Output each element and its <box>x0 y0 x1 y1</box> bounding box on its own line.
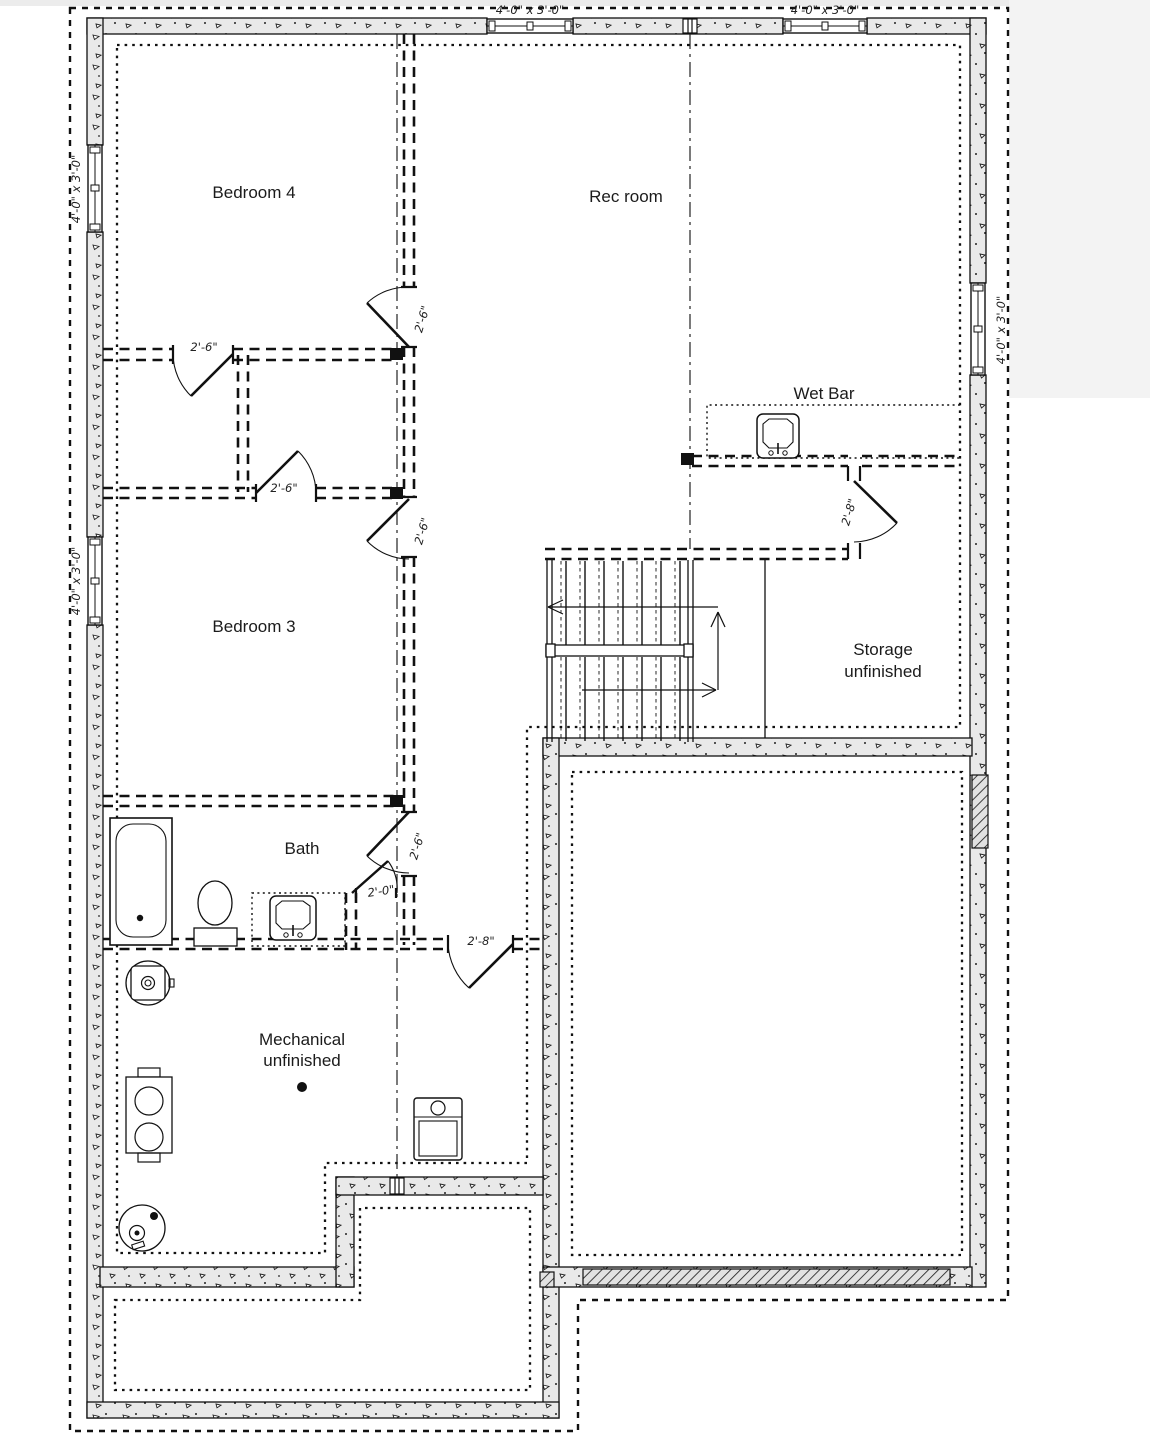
footing-outline <box>70 8 1008 1431</box>
window-size-label: 4'-0" x 3'-0" <box>69 547 83 616</box>
mechanical-fixtures <box>119 961 462 1251</box>
doors <box>173 287 897 988</box>
basement-floor-plan: Bedroom 4 Rec room Wet Bar Bedroom 3 Sto… <box>0 0 1150 1438</box>
window-size-label: 4'-0" x 3'-0" <box>791 3 860 17</box>
windows <box>88 19 985 625</box>
laundry-sink-icon <box>414 1098 462 1160</box>
top-wall-window-left <box>487 19 573 33</box>
floor-plan-drawing <box>0 0 1150 1438</box>
room-label-bedroom-3: Bedroom 3 <box>212 617 295 637</box>
left-wall-window-upper <box>88 145 102 232</box>
window-size-label: 4'-0" x 3'-0" <box>994 296 1008 365</box>
furnace-icon <box>126 1068 172 1162</box>
bathtub-icon <box>110 818 172 945</box>
top-wall-window-right <box>783 19 867 33</box>
storage-door <box>854 481 897 542</box>
bedroom4-closet-door <box>173 354 233 396</box>
concrete-walls <box>87 18 986 1418</box>
hatched-ledge <box>540 775 988 1287</box>
toilet-icon <box>194 881 237 946</box>
door-size-label: 2'-8" <box>467 934 494 948</box>
wet-bar-sink-icon <box>757 414 799 458</box>
bath-entry-door <box>367 812 409 873</box>
door-size-label: 2'-6" <box>190 340 217 354</box>
room-label-mechanical: Mechanical <box>259 1030 345 1050</box>
bedroom4-entry-door <box>367 287 409 347</box>
mechanical-door <box>448 944 513 988</box>
window-size-label: 4'-0" x 3'-0" <box>69 155 83 224</box>
room-label-bedroom-4: Bedroom 4 <box>212 183 295 203</box>
room-label-wet-bar: Wet Bar <box>793 384 854 404</box>
left-wall-window-lower <box>88 537 102 625</box>
right-wall-window <box>971 283 985 375</box>
bath-fixtures <box>110 818 345 946</box>
floor-drain-icon <box>297 1082 307 1092</box>
bath-sink-icon <box>270 896 316 940</box>
room-label-rec-room: Rec room <box>589 187 663 207</box>
room-label-bath: Bath <box>285 839 320 859</box>
door-size-label: 2'-6" <box>270 481 297 495</box>
wet-bar-counter <box>707 405 960 458</box>
room-label-mechanical-sub: unfinished <box>263 1051 341 1071</box>
bedroom3-entry-door <box>367 499 409 559</box>
room-label-storage-sub: unfinished <box>844 662 922 682</box>
water-heater-icon <box>126 961 174 1005</box>
framed-walls <box>103 34 958 950</box>
window-size-label: 4'-0" x 3'-0" <box>496 3 565 17</box>
stairs <box>546 560 765 742</box>
sump-pit-icon <box>119 1205 165 1251</box>
room-label-storage: Storage <box>853 640 913 660</box>
